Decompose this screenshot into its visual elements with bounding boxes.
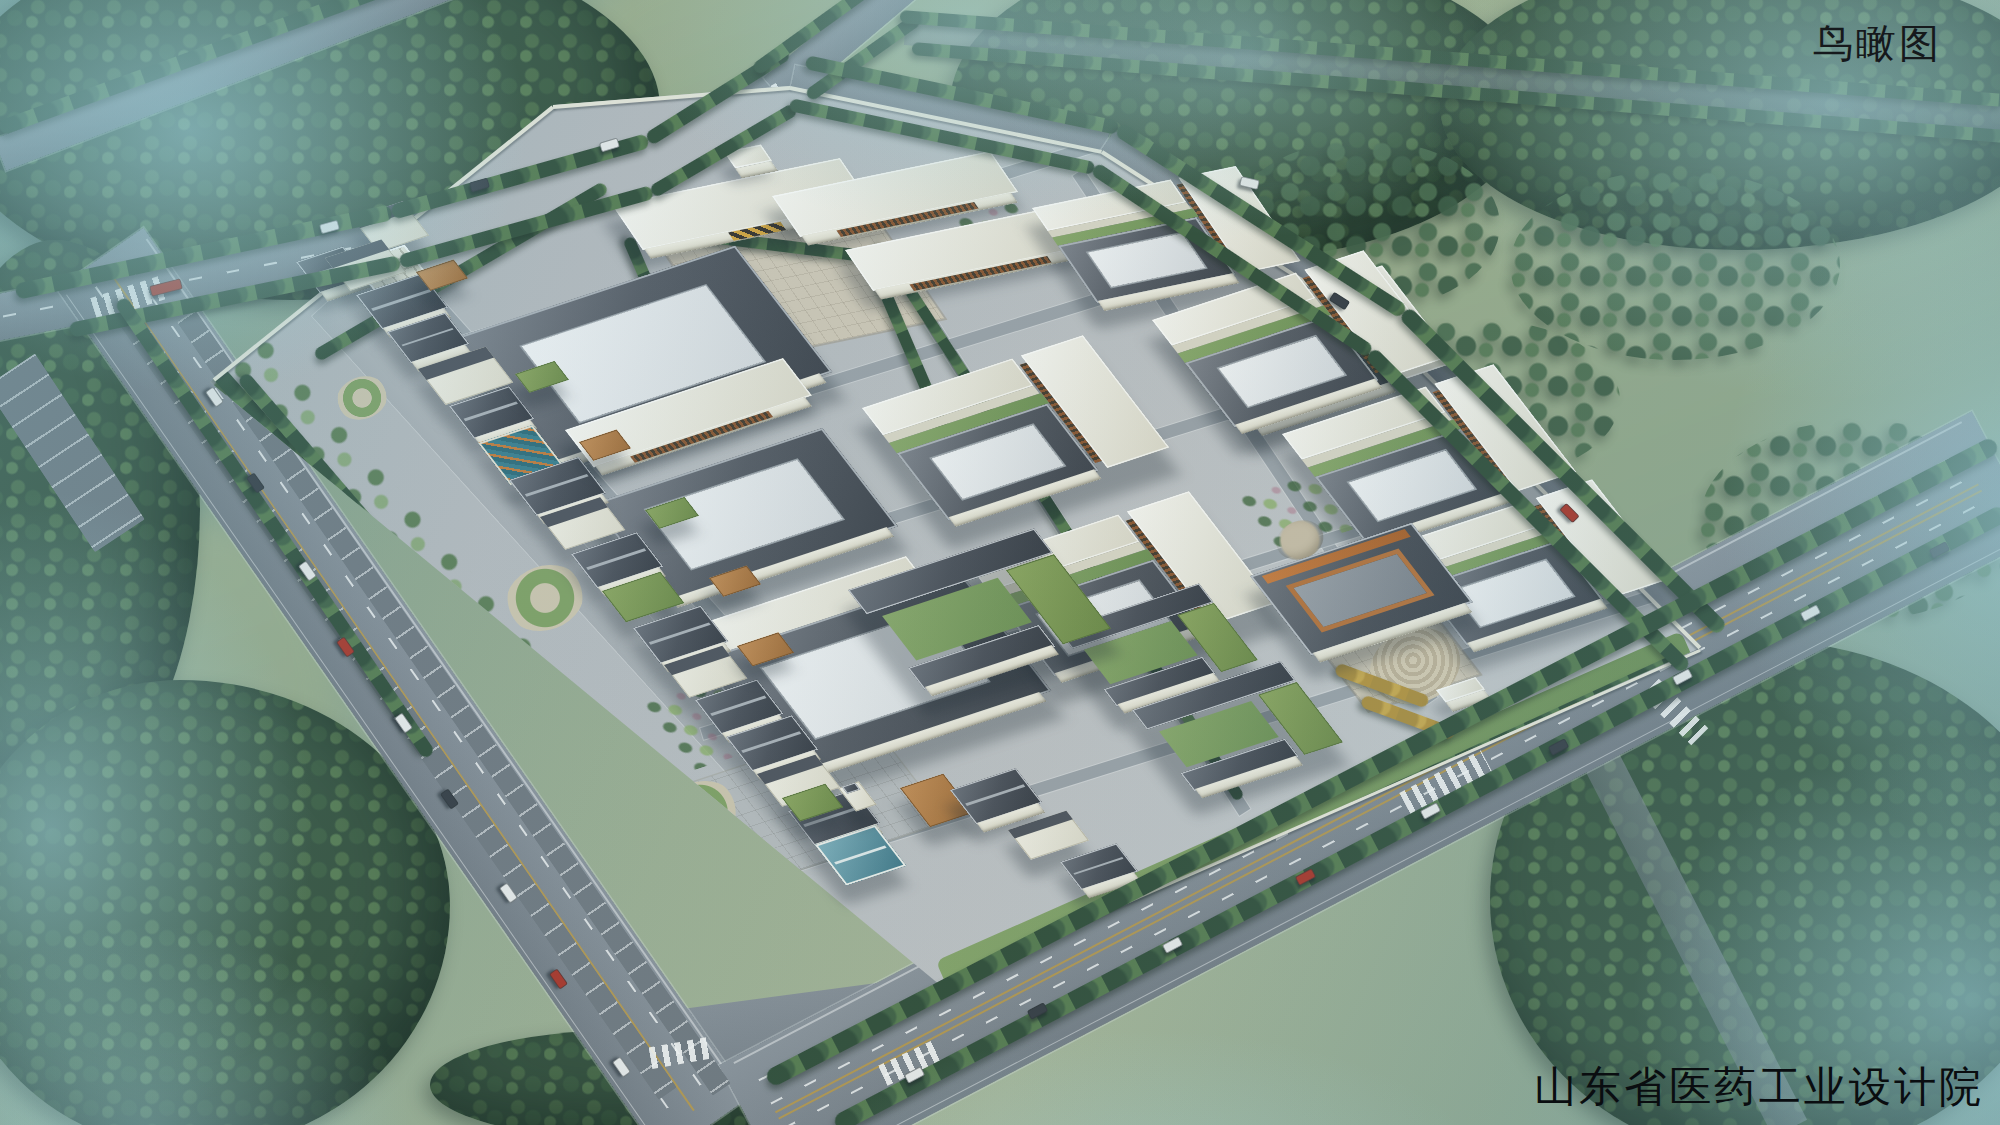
aerial-site-rendering: 鸟瞰图 山东省医药工业设计院 xyxy=(0,0,2000,1125)
building-tower xyxy=(838,781,877,811)
building-court xyxy=(862,335,1169,520)
building-flat xyxy=(1436,677,1485,703)
building-shopO xyxy=(416,260,468,291)
roof-orange xyxy=(416,260,468,291)
caption-birds-eye-view: 鸟瞰图 xyxy=(1813,16,1942,71)
landscape-layers xyxy=(0,0,2000,1125)
caption-design-institute: 山东省医药工业设计院 xyxy=(1534,1059,1984,1115)
building-shopD xyxy=(950,768,1042,824)
